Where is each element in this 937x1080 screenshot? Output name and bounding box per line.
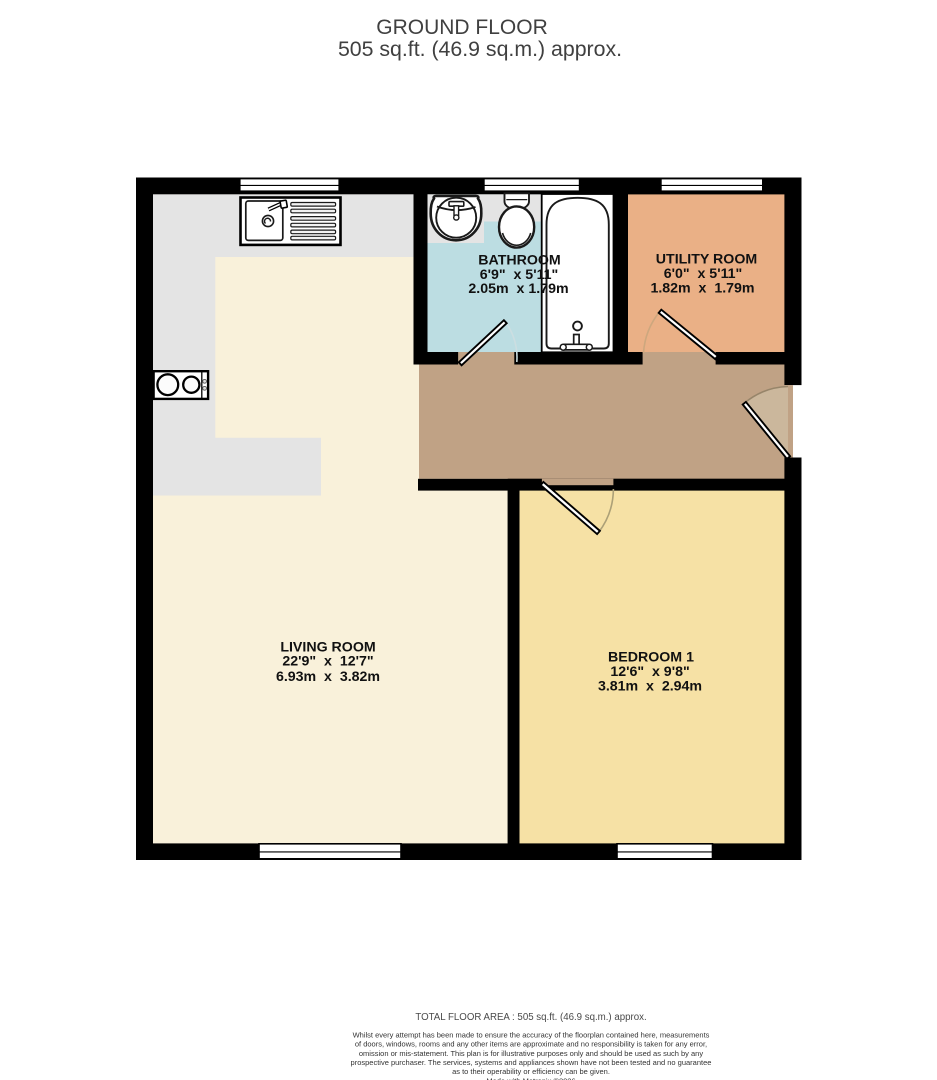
svg-text:Made with Metropix ©2026: Made with Metropix ©2026 bbox=[486, 1076, 575, 1080]
svg-text:6.93m x 3.82m: 6.93m x 3.82m bbox=[276, 669, 380, 685]
svg-text:of doors, windows, rooms and a: of doors, windows, rooms and any other i… bbox=[355, 1040, 707, 1049]
svg-text:3.81m x 2.94m: 3.81m x 2.94m bbox=[598, 678, 702, 694]
svg-text:505 sq.ft. (46.9 sq.m.) approx: 505 sq.ft. (46.9 sq.m.) approx. bbox=[338, 37, 622, 61]
svg-text:prospective purchaser. The ser: prospective purchaser. The services, sys… bbox=[351, 1058, 712, 1067]
svg-text:GROUND FLOOR: GROUND FLOOR bbox=[376, 16, 548, 39]
svg-text:omission or mis-statement. Thi: omission or mis-statement. This plan is … bbox=[359, 1049, 703, 1058]
svg-text:as to their operability or eff: as to their operability or efficiency ca… bbox=[452, 1067, 610, 1076]
svg-text:22'9" x 12'7": 22'9" x 12'7" bbox=[282, 654, 373, 670]
svg-text:TOTAL FLOOR AREA : 505 sq.ft.: TOTAL FLOOR AREA : 505 sq.ft. (46.9 sq.m… bbox=[415, 1012, 646, 1023]
svg-text:BEDROOM 1: BEDROOM 1 bbox=[608, 649, 694, 665]
svg-text:Whilst every attempt has been: Whilst every attempt has been made to en… bbox=[353, 1030, 710, 1039]
svg-text:1.82m x 1.79m: 1.82m x 1.79m bbox=[650, 280, 754, 296]
svg-text:2.05m x 1.79m: 2.05m x 1.79m bbox=[468, 281, 568, 297]
